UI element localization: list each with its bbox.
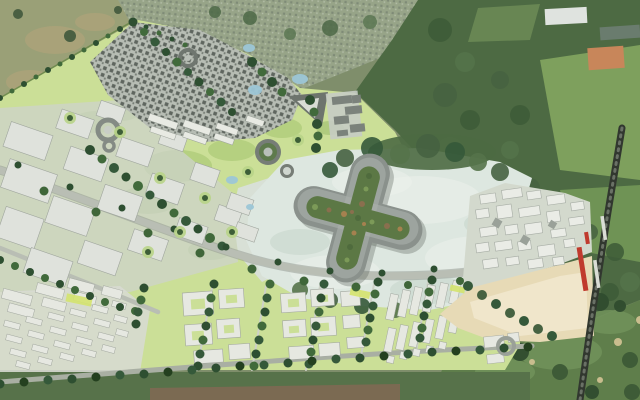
courtyard-lawn xyxy=(289,326,299,334)
circular-building-core xyxy=(104,126,112,134)
island-planting xyxy=(345,258,350,263)
station-district-building xyxy=(479,226,497,237)
park-tree xyxy=(157,175,163,181)
cluster-street-trees xyxy=(362,338,371,347)
station-district-building xyxy=(475,242,489,253)
farmland-crop-patch xyxy=(75,13,115,31)
woodland-canopy xyxy=(510,105,530,125)
farmland-tree xyxy=(13,9,23,19)
wedge-edge-trees xyxy=(533,324,543,334)
main-road-trees xyxy=(223,244,230,251)
tennis-courts-photo xyxy=(587,46,624,70)
avenue-trees xyxy=(278,88,287,97)
lakeside-tree xyxy=(390,144,410,164)
avenue-trees xyxy=(151,38,160,47)
avenue-trees xyxy=(56,280,64,288)
bottom-road-trees xyxy=(20,378,29,387)
station-district-building xyxy=(537,244,555,257)
boundary-hedgerow xyxy=(82,48,87,53)
cluster-street-trees xyxy=(317,294,326,303)
station-district-building xyxy=(494,240,512,251)
station-district-building xyxy=(546,210,560,223)
main-road-trees xyxy=(196,249,205,258)
golf-bunker xyxy=(614,338,622,346)
bottom-road-trees xyxy=(332,355,341,364)
courtyard-lawn xyxy=(191,299,206,310)
woodland-canopy xyxy=(428,18,452,42)
island-planting xyxy=(312,204,318,210)
island-planting xyxy=(359,201,365,207)
avenue-trees xyxy=(247,57,257,67)
avenue-trees xyxy=(258,68,267,77)
cluster-street-trees xyxy=(205,308,214,317)
bottom-road-trees xyxy=(452,347,461,356)
park-tree xyxy=(295,137,301,143)
woodland-clearing xyxy=(468,4,540,42)
island-planting xyxy=(327,208,332,213)
boundary-hedgerow xyxy=(93,40,99,46)
cluster-street-trees xyxy=(134,308,143,317)
wedge-edge-trees xyxy=(477,290,487,300)
station-district-building xyxy=(569,216,585,226)
white-shed-photo xyxy=(545,7,588,25)
avenue-trees xyxy=(206,88,214,96)
cluster-street-trees xyxy=(140,284,149,293)
woodland-canopy xyxy=(433,83,457,107)
park-tree xyxy=(145,249,151,255)
main-road-trees xyxy=(404,281,412,289)
wedge-edge-trees xyxy=(491,299,501,309)
suburb-tree xyxy=(322,20,338,36)
boundary-hedgerow xyxy=(157,31,162,36)
avenue-trees xyxy=(311,143,321,153)
avenue-trees xyxy=(228,108,236,116)
main-road-trees xyxy=(40,187,49,196)
boundary-hedgerow xyxy=(117,26,123,32)
suburb-tree xyxy=(243,11,257,25)
lakeside-ring-monument xyxy=(264,148,273,157)
farmland-crop-patch xyxy=(25,26,85,54)
lakeside-tree xyxy=(491,163,509,181)
pond xyxy=(226,176,238,184)
station-district-building xyxy=(571,201,585,211)
golf-bunker xyxy=(597,377,603,383)
cluster-street-trees xyxy=(252,350,261,359)
avenue-trees xyxy=(146,191,155,200)
lakeside-tree xyxy=(336,149,354,167)
park-tree xyxy=(245,169,251,175)
cluster-street-trees xyxy=(250,362,259,371)
boundary-hedgerow xyxy=(183,43,188,48)
courtyard-block xyxy=(229,343,251,359)
main-road-trees xyxy=(15,162,22,169)
boundary-hedgerow xyxy=(21,81,27,87)
cluster-street-trees xyxy=(309,336,318,345)
bottom-road-trees xyxy=(236,362,245,371)
avenue-trees xyxy=(184,68,192,76)
cluster-street-trees xyxy=(366,314,375,323)
avenue-trees xyxy=(11,262,19,270)
boundary-hedgerow xyxy=(69,54,75,60)
cluster-street-trees xyxy=(202,322,211,331)
avenue-trees xyxy=(85,145,95,155)
housing-circular-core xyxy=(185,55,191,61)
map-layers xyxy=(0,0,640,400)
cluster-street-trees xyxy=(312,322,321,331)
avenue-trees xyxy=(217,98,226,107)
island-planting xyxy=(347,244,353,250)
pond xyxy=(248,85,262,95)
island-planting xyxy=(350,210,354,214)
suburb-tree xyxy=(284,28,296,40)
wedge-edge-trees xyxy=(463,281,473,291)
bottom-road-trees xyxy=(308,357,317,366)
avenue-trees xyxy=(170,209,179,218)
lakeside-tree xyxy=(445,142,465,162)
bottom-road-trees xyxy=(92,373,101,382)
avenue-trees xyxy=(310,108,319,117)
woodland-canopy xyxy=(606,243,624,261)
bottom-road-trees xyxy=(476,346,485,355)
woodland-canopy xyxy=(491,71,509,89)
courtyard-lawn xyxy=(226,295,238,304)
station-district-building xyxy=(551,228,567,238)
island-planting xyxy=(355,215,361,221)
avenue-trees xyxy=(140,28,148,36)
main-road-trees xyxy=(119,205,126,212)
island-planting xyxy=(370,220,375,225)
cluster-street-trees xyxy=(132,320,141,329)
cluster-street-trees xyxy=(210,280,219,289)
bottom-road-trees xyxy=(212,364,221,373)
cluster-street-trees xyxy=(423,300,432,309)
masterplan-svg xyxy=(0,0,640,400)
station-district-building xyxy=(496,204,513,219)
cluster-street-trees xyxy=(307,348,316,357)
suburb-tree xyxy=(363,15,377,29)
boundary-hedgerow xyxy=(106,34,111,39)
lakeside-tree xyxy=(416,134,440,158)
wedge-edge-trees xyxy=(547,331,557,341)
avenue-trees xyxy=(41,274,49,282)
park-tree xyxy=(117,129,123,135)
station-district-building xyxy=(504,224,518,235)
cluster-street-trees xyxy=(416,334,425,343)
golf-tree xyxy=(552,364,568,380)
courtyard-lawn xyxy=(224,325,235,334)
cluster-street-trees xyxy=(266,280,275,289)
cluster-street-trees xyxy=(425,288,434,297)
main-road-trees xyxy=(300,277,309,286)
avenue-trees xyxy=(101,298,109,306)
bottom-road-trees xyxy=(500,344,509,353)
cluster-street-trees xyxy=(371,290,380,299)
farmland-tree xyxy=(114,6,122,14)
lakeside-tree xyxy=(322,162,338,178)
cluster-street-trees xyxy=(137,296,146,305)
avenue-trees xyxy=(205,233,215,243)
main-road-trees xyxy=(327,268,334,275)
cluster-street-trees xyxy=(364,326,373,335)
woodland-canopy xyxy=(460,110,480,130)
bottom-road-trees xyxy=(44,376,53,385)
wedge-edge-trees xyxy=(519,316,529,326)
main-road-trees xyxy=(144,229,153,238)
avenue-trees xyxy=(71,286,79,294)
bottom-road-trees xyxy=(404,350,413,359)
courtyard-block xyxy=(343,314,361,328)
main-road-trees xyxy=(275,259,282,266)
cluster-street-trees xyxy=(196,350,205,359)
main-road-trees xyxy=(456,277,464,285)
avenue-trees xyxy=(162,48,170,56)
park-tree xyxy=(229,229,235,235)
island-planting xyxy=(398,227,403,232)
avenue-trees xyxy=(173,58,182,67)
lake-water-blob xyxy=(270,229,330,255)
main-road-trees xyxy=(379,270,386,277)
cluster-street-trees xyxy=(263,294,272,303)
slab-building xyxy=(412,348,420,356)
station-district-building xyxy=(482,258,498,269)
cluster-street-trees xyxy=(315,308,324,317)
cluster-street-trees xyxy=(374,278,383,287)
station-district-building xyxy=(475,208,489,219)
bottom-road-trees xyxy=(68,375,77,384)
golf-tree xyxy=(614,300,626,312)
station-district-building xyxy=(524,222,542,235)
farmland-tree xyxy=(64,30,76,42)
avenue-trees xyxy=(267,77,277,87)
pond xyxy=(292,74,308,84)
cluster-street-trees xyxy=(255,336,264,345)
island-planting xyxy=(366,173,372,179)
avenue-trees xyxy=(116,303,124,311)
main-road-trees xyxy=(92,208,101,217)
avenue-trees xyxy=(109,163,119,173)
boundary-hedgerow xyxy=(34,75,39,80)
station-district-building xyxy=(552,256,564,265)
island-planting xyxy=(364,187,369,192)
courtyard-lawn xyxy=(288,299,300,308)
bottom-road-trees xyxy=(260,361,269,370)
boundary-hedgerow xyxy=(58,62,63,67)
bottom-road-trees xyxy=(164,368,173,377)
cluster-street-trees xyxy=(369,302,378,311)
avenue-trees xyxy=(195,78,204,87)
campus-building xyxy=(350,123,366,133)
lakeside-tree xyxy=(469,153,487,171)
main-road-trees xyxy=(248,265,257,274)
woodland-canopy xyxy=(501,141,519,159)
avenue-trees xyxy=(129,18,138,27)
bottom-road-trees xyxy=(356,354,365,363)
station-district-building xyxy=(563,238,575,247)
bottom-road-trees xyxy=(428,348,437,357)
boundary-hedgerow xyxy=(45,67,51,73)
station-district-building xyxy=(479,193,496,204)
courtyard-block xyxy=(319,342,341,356)
station-district-building xyxy=(506,256,520,266)
cluster-street-trees xyxy=(428,276,437,285)
avenue-trees xyxy=(86,292,94,300)
campus-building xyxy=(334,115,350,125)
bottom-road-trees xyxy=(188,366,197,375)
station-district-building xyxy=(527,190,542,200)
cluster-street-trees xyxy=(258,322,267,331)
park-tree xyxy=(202,195,208,201)
avenue-trees xyxy=(133,181,143,191)
bottom-road-trees xyxy=(140,370,149,379)
cluster-street-trees xyxy=(199,336,208,345)
bottom-road-trees xyxy=(380,352,389,361)
island-planting xyxy=(384,223,390,229)
golf-tree xyxy=(622,352,638,368)
woodland-canopy xyxy=(455,52,475,72)
bottom-road-trees xyxy=(284,359,293,368)
avenue-trees xyxy=(181,216,191,226)
main-road-trees xyxy=(67,184,74,191)
boundary-hedgerow xyxy=(10,89,15,94)
island-planting xyxy=(352,231,357,236)
golf-tree xyxy=(585,385,599,399)
bottom-road-trees xyxy=(116,371,125,380)
avenue-trees xyxy=(157,199,167,209)
golf-tree xyxy=(624,384,640,400)
lakeside-ring-small xyxy=(283,167,291,175)
island-planting xyxy=(341,211,347,217)
bottom-road-trees xyxy=(524,343,533,352)
avenue-trees xyxy=(305,95,315,105)
cluster-street-trees xyxy=(261,308,270,317)
main-road-trees xyxy=(431,266,438,273)
pond xyxy=(243,44,255,52)
slab-building xyxy=(438,341,446,349)
suburb-tree xyxy=(209,6,221,18)
station-district-building xyxy=(527,258,543,269)
boundary-hedgerow xyxy=(170,37,175,42)
golf-bunker xyxy=(529,359,535,365)
campus-building xyxy=(337,129,349,136)
masterplan-map xyxy=(0,0,640,400)
island-planting xyxy=(362,222,366,226)
cluster-street-trees xyxy=(207,294,216,303)
cluster-street-trees xyxy=(418,324,427,333)
avenue-trees xyxy=(194,225,203,234)
cluster-street-trees xyxy=(420,312,429,321)
avenue-trees xyxy=(98,155,107,164)
cluster-street-trees xyxy=(320,280,329,289)
park-tree xyxy=(177,229,183,235)
park-tree xyxy=(67,115,73,121)
pond xyxy=(246,204,254,210)
avenue-trees xyxy=(122,173,131,182)
woodland-canopy xyxy=(620,272,640,292)
campus-building xyxy=(352,95,362,104)
wedge-edge-trees xyxy=(505,308,515,318)
avenue-trees xyxy=(314,132,323,141)
avenue-trees xyxy=(26,268,34,276)
avenue-trees xyxy=(312,119,322,129)
main-road-trees xyxy=(352,283,361,292)
